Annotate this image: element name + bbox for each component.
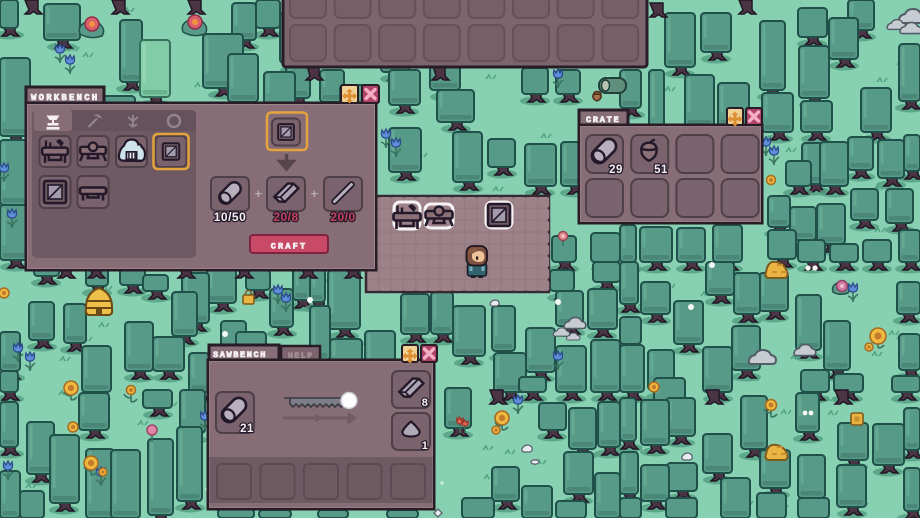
svg-text:WORKBENCH: WORKBENCH xyxy=(31,93,99,103)
svg-text:8: 8 xyxy=(422,397,429,409)
svg-text:CRATE: CRATE xyxy=(586,115,621,125)
svg-text:10/50: 10/50 xyxy=(214,210,247,224)
svg-text:SAWBENCH: SAWBENCH xyxy=(213,350,267,360)
svg-text:20/8: 20/8 xyxy=(273,210,298,224)
svg-text:29: 29 xyxy=(609,164,623,176)
svg-text:1: 1 xyxy=(422,440,429,452)
svg-text:21: 21 xyxy=(240,423,254,435)
svg-text:20/0: 20/0 xyxy=(330,210,355,224)
svg-text:+: + xyxy=(310,186,318,201)
svg-text:+: + xyxy=(254,186,262,201)
svg-text:CRAFT: CRAFT xyxy=(271,242,308,252)
svg-text:HELP: HELP xyxy=(288,352,314,361)
svg-text:51: 51 xyxy=(654,164,668,176)
